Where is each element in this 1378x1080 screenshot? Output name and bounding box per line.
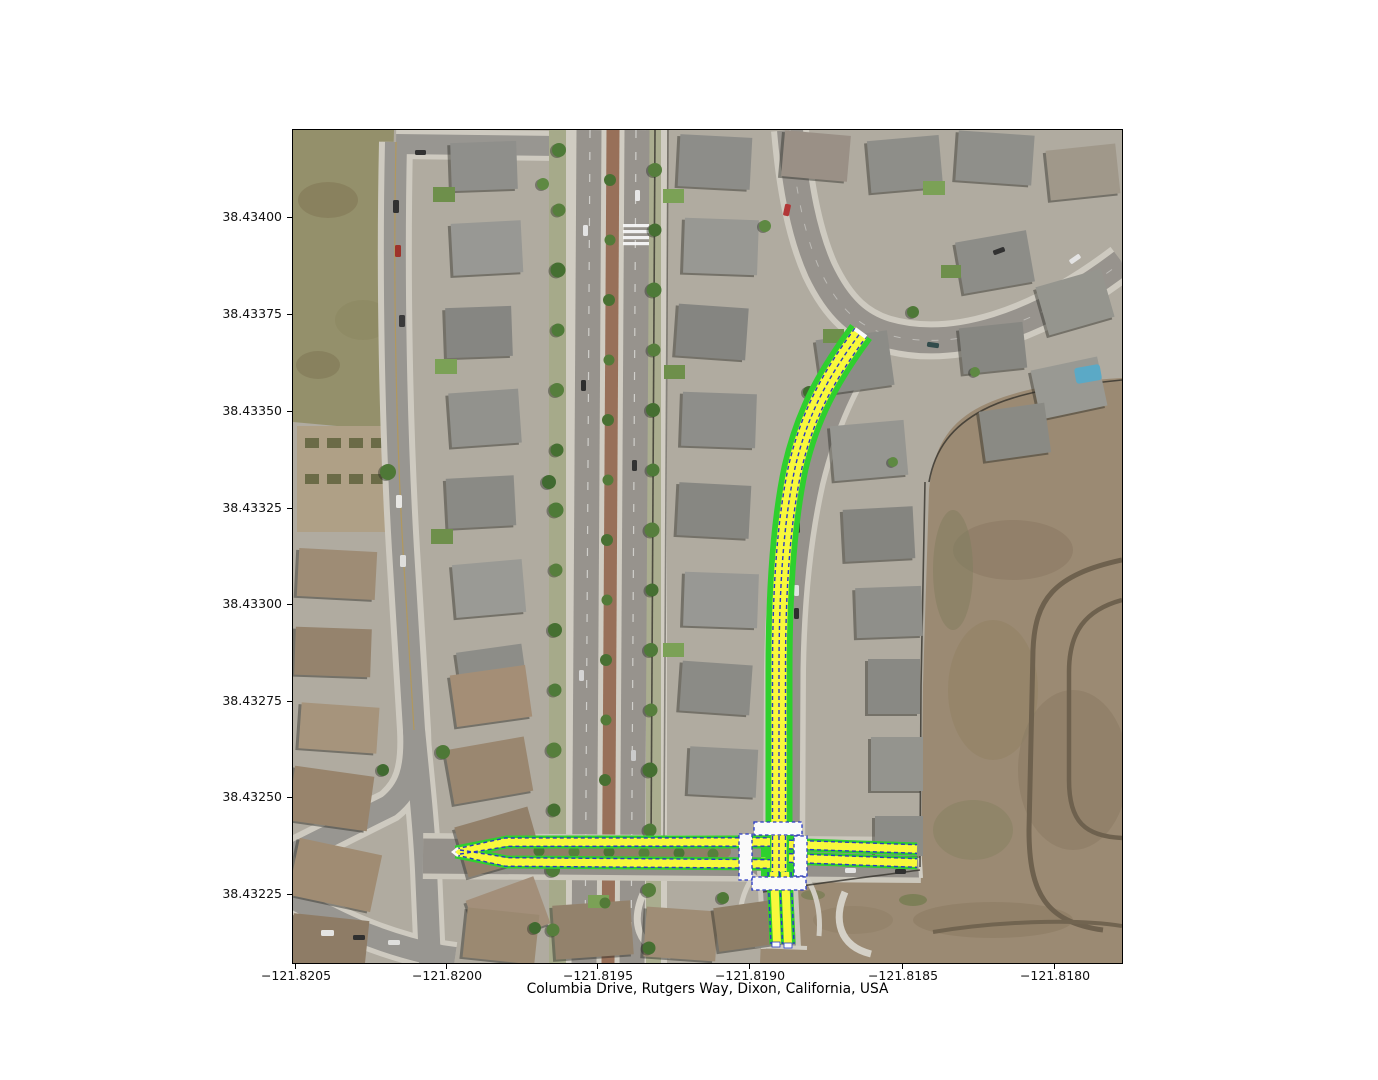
y-axis-tick-label: 38.43225 (168, 886, 282, 901)
y-axis-tick-label: 38.43275 (168, 693, 282, 708)
figure-canvas: 38.43400 38.43375 38.43350 38.43325 38.4… (0, 0, 1378, 1080)
aerial-map (293, 130, 1122, 963)
plot-area (292, 129, 1123, 964)
y-axis-tick-label: 38.43325 (168, 500, 282, 515)
y-axis-tick-label: 38.43375 (168, 306, 282, 321)
x-tick-mark (749, 964, 750, 969)
x-tick-mark (597, 964, 598, 969)
y-axis-tick-label: 38.43400 (168, 209, 282, 224)
x-tick-mark (1054, 964, 1055, 969)
map-title: Columbia Drive, Rutgers Way, Dixon, Cali… (292, 981, 1123, 997)
x-tick-mark (446, 964, 447, 969)
y-axis-tick-label: 38.43350 (168, 403, 282, 418)
x-tick-mark (295, 964, 296, 969)
imagery-tint (293, 130, 1122, 963)
y-axis-tick-label: 38.43250 (168, 789, 282, 804)
x-tick-mark (902, 964, 903, 969)
y-axis-tick-label: 38.43300 (168, 596, 282, 611)
